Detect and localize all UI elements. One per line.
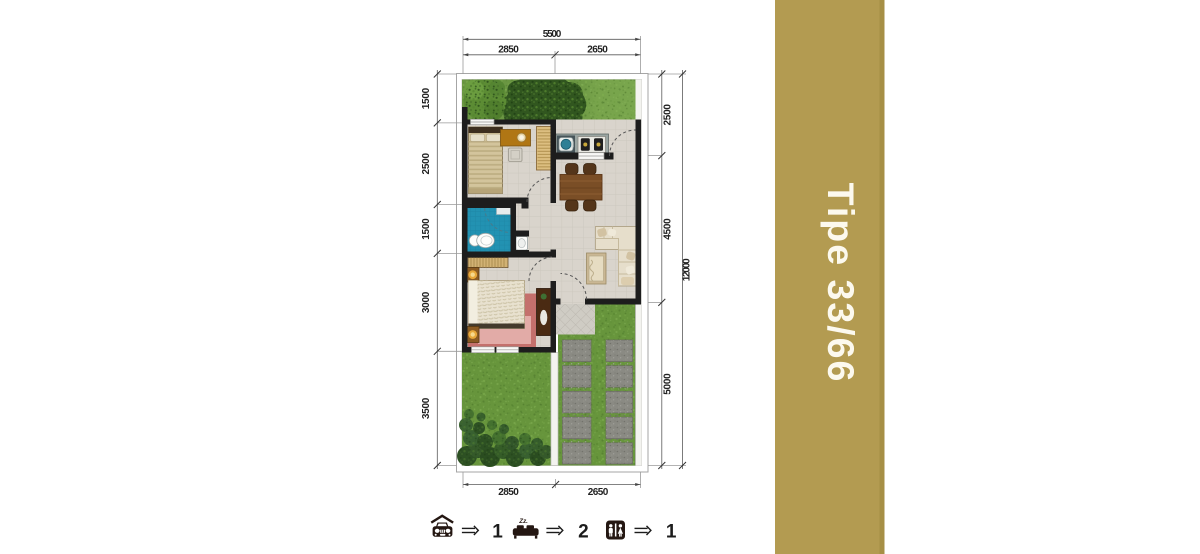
svg-text:12000: 12000 <box>682 258 693 281</box>
svg-text:2500: 2500 <box>663 104 674 126</box>
svg-text:1: 1 <box>492 522 503 543</box>
svg-text:2: 2 <box>578 522 589 543</box>
svg-text:2850: 2850 <box>498 487 519 498</box>
svg-text:Zz.: Zz. <box>518 518 528 525</box>
svg-text:3500: 3500 <box>421 397 432 419</box>
svg-text:1500: 1500 <box>421 87 432 109</box>
svg-text:2650: 2650 <box>588 487 609 498</box>
svg-text:4500: 4500 <box>663 218 674 240</box>
svg-text:2850: 2850 <box>498 45 519 56</box>
svg-text:5000: 5000 <box>663 373 674 395</box>
svg-text:3000: 3000 <box>421 291 432 313</box>
svg-text:2500: 2500 <box>421 153 432 175</box>
svg-text:5500: 5500 <box>543 29 562 40</box>
svg-text:1: 1 <box>666 522 677 543</box>
svg-text:1500: 1500 <box>421 218 432 240</box>
svg-text:Tipe 33/66: Tipe 33/66 <box>820 183 862 384</box>
svg-text:2650: 2650 <box>587 45 608 56</box>
